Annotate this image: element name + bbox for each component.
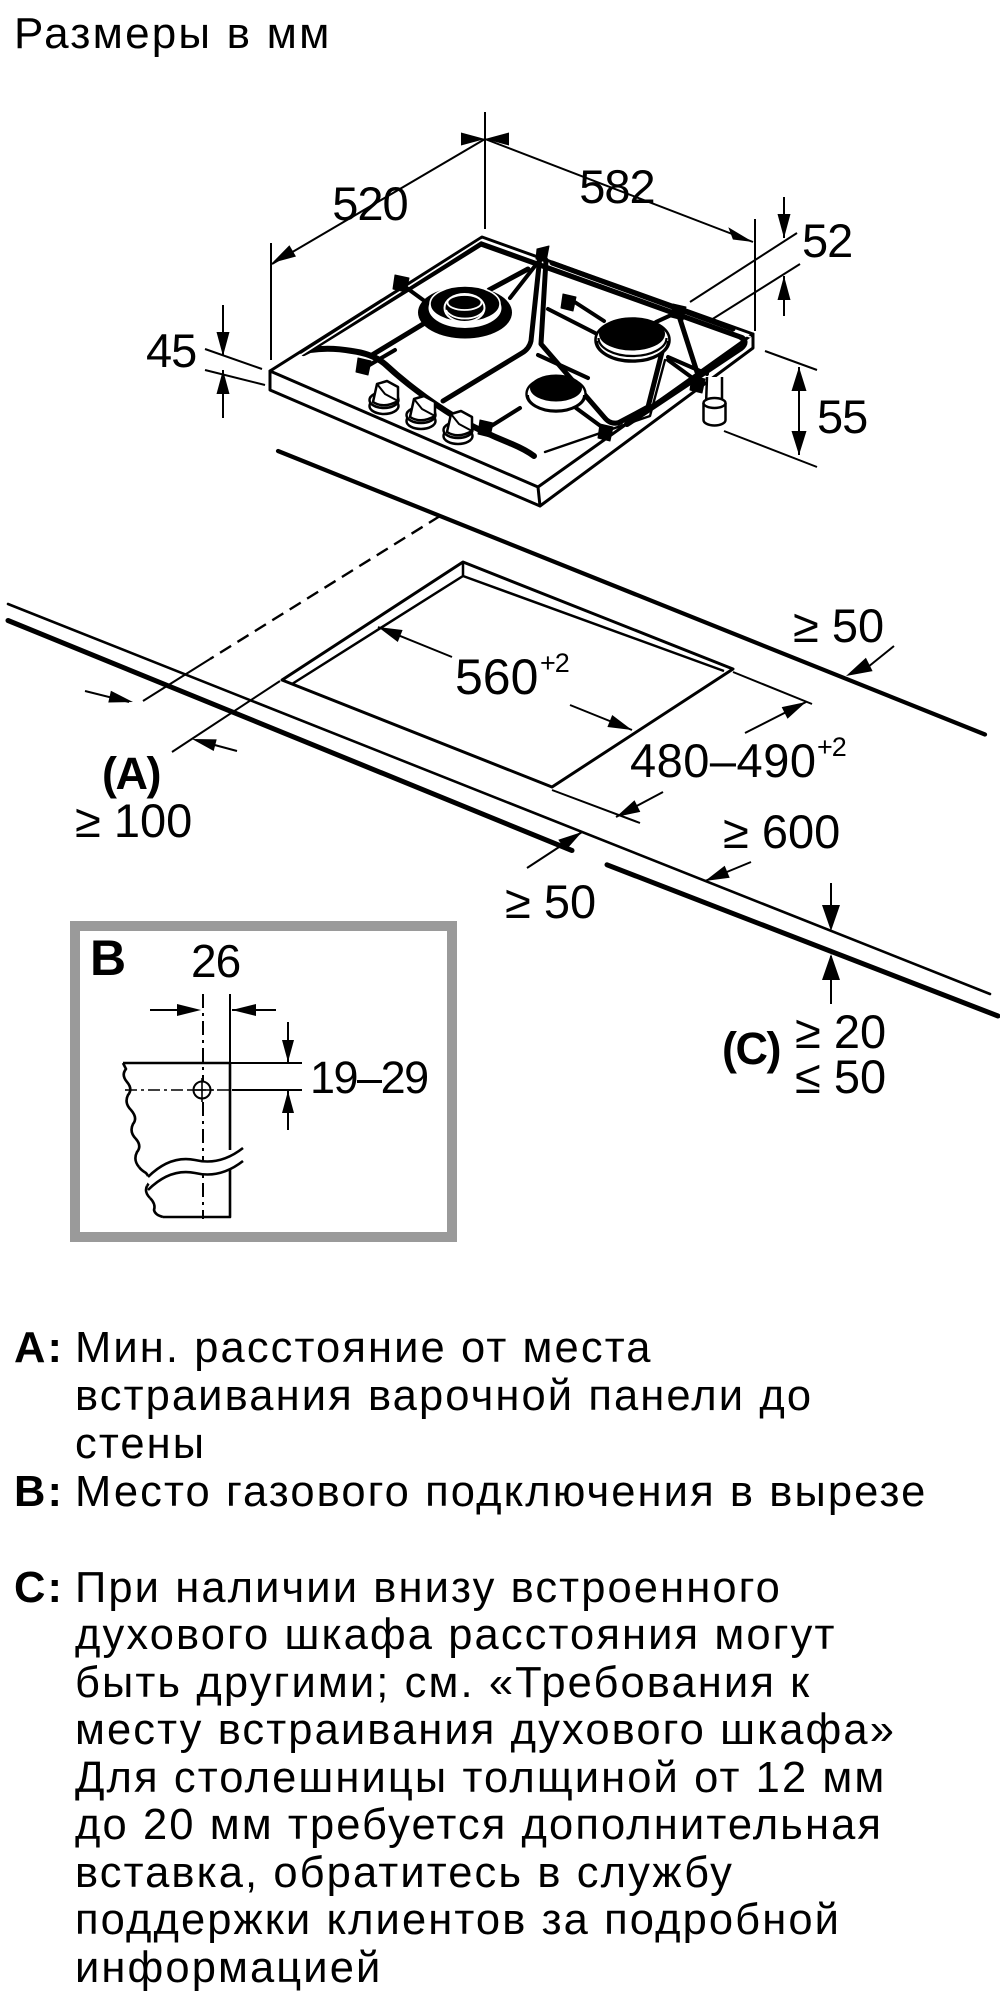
svg-text:B:: B: — [14, 1468, 64, 1516]
svg-text:Для столешницы толщиной от 12: Для столешницы толщиной от 12 мм — [75, 1754, 886, 1802]
svg-text:месту встраивания духового шка: месту встраивания духового шкафа» — [75, 1706, 896, 1754]
svg-text:≥ 100: ≥ 100 — [75, 794, 192, 847]
svg-text:560: 560 — [455, 649, 538, 705]
svg-text:вставка, обратитесь в службу: вставка, обратитесь в службу — [75, 1849, 734, 1897]
svg-text:480–490: 480–490 — [630, 734, 816, 787]
svg-text:Место газового подключения в в: Место газового подключения в вырезе — [75, 1468, 927, 1516]
svg-text:встраивания варочной панели до: встраивания варочной панели до — [75, 1372, 813, 1420]
svg-text:26: 26 — [191, 935, 240, 987]
svg-text:45: 45 — [146, 324, 196, 377]
svg-text:55: 55 — [817, 390, 867, 443]
svg-text:Размеры в мм: Размеры в мм — [14, 9, 332, 58]
svg-text:520: 520 — [332, 177, 407, 230]
svg-text:(C): (C) — [722, 1023, 780, 1074]
svg-text:+2: +2 — [540, 648, 569, 678]
svg-text:B: B — [90, 930, 126, 986]
svg-text:A:: A: — [14, 1324, 64, 1372]
svg-text:52: 52 — [802, 214, 852, 267]
svg-text:≥ 50: ≥ 50 — [505, 875, 596, 928]
svg-text:≤ 50: ≤ 50 — [795, 1050, 886, 1103]
svg-text:информацией: информацией — [75, 1944, 382, 1992]
svg-text:(A): (A) — [102, 748, 160, 799]
svg-text:582: 582 — [579, 160, 654, 213]
svg-text:При наличии внизу встроенного: При наличии внизу встроенного — [75, 1564, 782, 1612]
svg-text:до 20 мм требуется дополнитель: до 20 мм требуется дополнительная — [75, 1801, 883, 1849]
svg-text:≥ 600: ≥ 600 — [723, 805, 840, 858]
svg-text:поддержки клиентов за подробно: поддержки клиентов за подробной — [75, 1896, 841, 1944]
svg-text:Мин. расстояние от места: Мин. расстояние от места — [75, 1324, 653, 1372]
svg-text:19–29: 19–29 — [310, 1052, 428, 1103]
svg-text:быть другими; см. «Требования: быть другими; см. «Требования к — [75, 1659, 811, 1707]
svg-text:C:: C: — [14, 1564, 64, 1612]
svg-text:духового шкафа расстояния могу: духового шкафа расстояния могут — [75, 1611, 837, 1659]
svg-text:стены: стены — [75, 1420, 206, 1468]
svg-text:≥ 50: ≥ 50 — [793, 599, 884, 652]
svg-text:+2: +2 — [817, 732, 846, 762]
